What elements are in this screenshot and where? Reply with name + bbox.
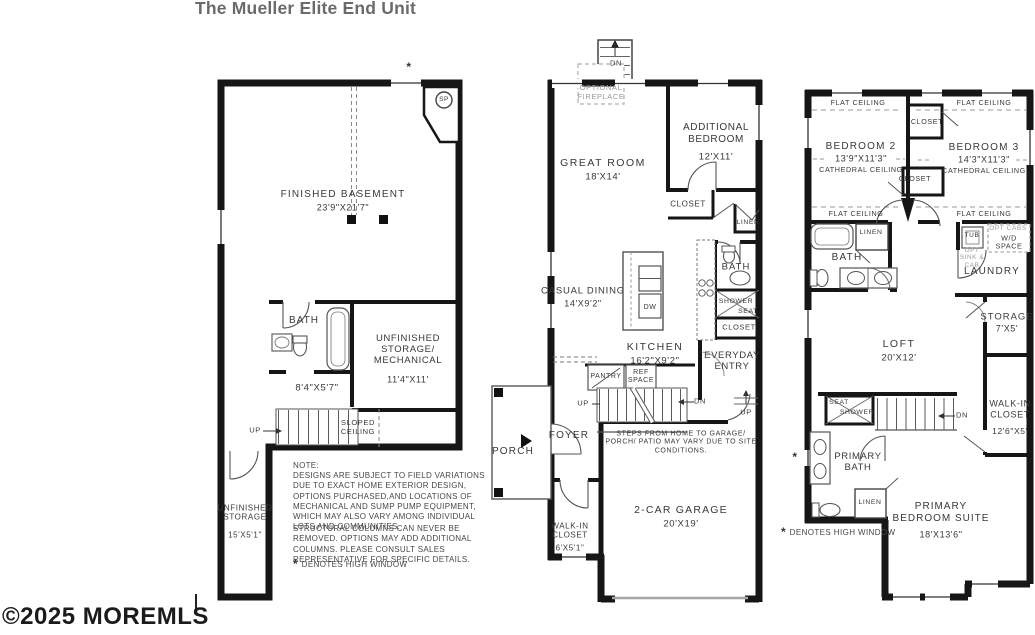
room-storage-sf: STORAGE [980, 311, 1033, 322]
room-casual-dining: CASUAL DINING [541, 285, 625, 296]
room-loft: LOFT [883, 338, 916, 350]
room-bedroom-2: BEDROOM 2 [826, 141, 897, 153]
room-storage-mechanical: UNFINISHED STORAGE/ MECHANICAL [363, 333, 453, 367]
note-paragraph-2: STRUCTURAL COLUMNS CAN NEVER BE REMOVED.… [293, 524, 491, 565]
linen-label-ff: LINEN [736, 219, 759, 227]
room-garage: 2-CAR GARAGE [634, 504, 728, 516]
room-walk-in-closet-sf-dims: 12'6"X5' [992, 426, 1028, 436]
stairs-dn-label-sf: DN [956, 412, 968, 421]
room-unfinished-storage-dims: 15'X5'1" [228, 530, 262, 539]
room-great-room-dims: 18'X14' [585, 171, 620, 182]
room-primary-bath: PRIMARY BATH [826, 451, 890, 473]
room-porch: PORCH [492, 446, 534, 458]
room-walk-in-closet-ff-dims: 6'X5'1" [556, 543, 585, 552]
room-foyer: FOYER [549, 430, 589, 442]
wd-space-label: W/D SPACE [988, 235, 1030, 252]
shower-label-sf: SHOWER [840, 409, 874, 417]
floorplan-sheet: The Mueller Elite End Unit * SP FINISHED… [0, 0, 1035, 635]
room-everyday-entry: EVERYDAY ENTRY [692, 350, 772, 372]
garage-steps-note: STEPS FROM HOME TO GARAGE/ PORCH/ PATIO … [602, 431, 760, 456]
stairs-dn-label-ff: DN [694, 398, 706, 407]
bedroom-2-cathedral-label: CATHEDRAL CEILING [819, 166, 903, 174]
sloped-ceiling-label: SLOPED CEILING [334, 419, 382, 437]
sf-high-window-legend-text: DENOTES HIGH WINDOW [790, 528, 896, 537]
flat-ceiling-label-4: FLAT CEILING [957, 210, 1012, 218]
sf-high-window-legend-mark: * [781, 528, 786, 536]
flat-ceiling-label-1: FLAT CEILING [831, 99, 886, 107]
stairs-up-label-ff: UP [577, 400, 589, 409]
basement-high-window-mark: * [406, 63, 411, 71]
deck-stairs-dn-label: DN [610, 60, 622, 69]
sump-pump-label: SP [439, 96, 449, 104]
entry-closet-label: CLOSET [722, 324, 756, 333]
shower-seat-label-sf: SEAT [829, 399, 849, 407]
room-kitchen-dims: 16'2"X9'2" [630, 355, 679, 366]
room-walk-in-closet-ff: WALK-IN CLOSET [539, 522, 601, 541]
bedroom-3-cathedral-label: CATHEDRAL CEILING [942, 167, 1026, 175]
room-storage-sf-dims: 7'X5' [996, 324, 1018, 335]
plan-title: The Mueller Elite End Unit [195, 0, 416, 19]
room-laundry: LAUNDRY [964, 266, 1020, 278]
dishwasher-label: DW [644, 304, 657, 312]
room-primary-suite: PRIMARY BEDROOM SUITE [891, 501, 991, 525]
bedroom-closet-label: CLOSET [670, 199, 706, 208]
floorplan-drawing [0, 0, 1035, 635]
basement-up-label: UP [249, 427, 261, 436]
room-walk-in-closet-sf: WALK-IN CLOSET [980, 398, 1035, 419]
room-casual-dining-dims: 14'X9'2" [564, 299, 601, 310]
room-basement-bath: BATH [289, 315, 319, 327]
flat-ceiling-label-2: FLAT CEILING [957, 99, 1012, 107]
sf-high-window-mark: * [792, 453, 797, 461]
optional-fireplace-label: OPTIONAL FIREPLACE [575, 84, 627, 102]
room-bath-sf: BATH [832, 252, 863, 264]
primary-linen-label: LINEN [858, 499, 881, 507]
shower-seat-label-ff: SEAT [738, 308, 758, 316]
laundry-tub-label: TUB [965, 232, 980, 240]
room-bedroom-2-dims: 13'9"X11'3" [835, 154, 887, 165]
room-unfinished-storage: UNFINISHED STORAGE [216, 504, 274, 523]
room-bath-ff: BATH [722, 261, 751, 272]
ref-space-label: REF SPACE [624, 369, 658, 386]
room-finished-basement-dims: 23'9"X21'7" [317, 203, 369, 214]
room-great-room: GREAT ROOM [560, 157, 646, 169]
room-finished-basement: FINISHED BASEMENT [281, 189, 406, 201]
room-additional-bedroom-dims: 12'X11' [699, 151, 734, 162]
note-heading: NOTE: [293, 461, 491, 471]
room-garage-dims: 20'X19' [663, 518, 698, 529]
sf-high-window-legend: * DENOTES HIGH WINDOW [781, 528, 896, 537]
linen-label-sf: LINEN [859, 229, 882, 237]
high-window-legend-text: DENOTES HIGH WINDOW [302, 560, 408, 569]
flat-ceiling-label-3: FLAT CEILING [829, 210, 884, 218]
room-primary-suite-dims: 18'X13'6" [919, 530, 962, 541]
room-bedroom-3-dims: 14'3"X11'3" [958, 155, 1010, 166]
shower-label-ff: SHOWER [719, 298, 753, 306]
room-kitchen: KITCHEN [627, 341, 684, 353]
room-storage-mechanical-dims: 11'4"X11' [387, 375, 429, 386]
garage-steps-up-label: UP [740, 409, 752, 418]
bedroom2-closet-label: CLOSET [899, 175, 931, 183]
basement-hall-dims: 8'4"X5'7" [295, 382, 338, 393]
mls-watermark: ©2025 MOREMLS [2, 603, 209, 631]
room-additional-bedroom: ADDITIONAL BEDROOM [670, 122, 762, 146]
bedroom3-closet-label: CLOSET [911, 118, 943, 126]
room-loft-dims: 20'X12' [881, 352, 916, 363]
room-bedroom-3: BEDROOM 3 [949, 142, 1020, 154]
pantry-label: PANTRY [590, 373, 621, 381]
opt-cabs-label: OPT CABS [989, 225, 1027, 233]
high-window-legend: * DENOTES HIGH WINDOW [293, 560, 408, 569]
high-window-legend-mark: * [293, 560, 298, 568]
